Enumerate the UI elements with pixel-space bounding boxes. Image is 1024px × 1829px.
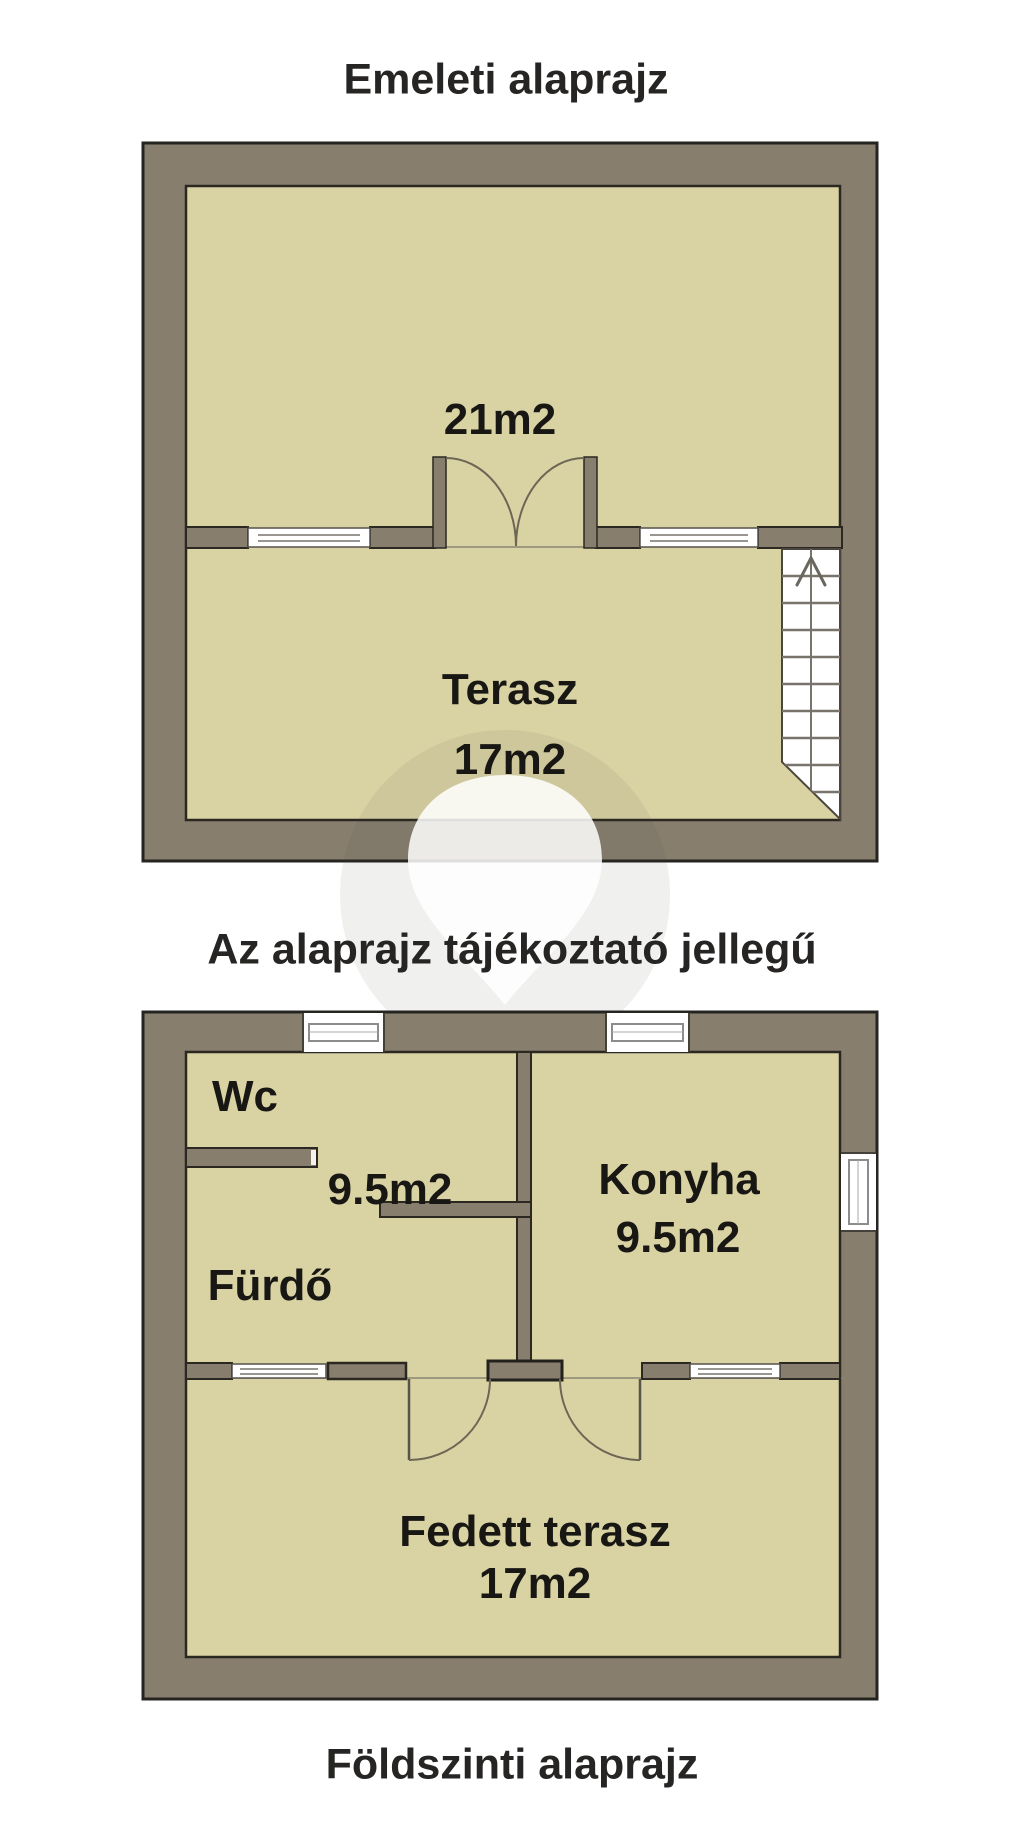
- room-label-bathroom: Fürdő: [208, 1264, 333, 1308]
- upper-floor: [186, 186, 840, 820]
- floorplan-page: Emeleti alaprajz 21m2 Terasz 17m2 Az ala…: [0, 0, 1024, 1829]
- room-label-wc: Wc: [212, 1075, 278, 1119]
- room-label-kitchen-area: 9.5m2: [616, 1216, 741, 1260]
- window: [248, 528, 370, 547]
- window: [690, 1364, 780, 1378]
- room-label-terrace: Terasz: [442, 668, 578, 712]
- wall-segment: [488, 1361, 562, 1380]
- room-label-terrace-area: 17m2: [454, 738, 567, 782]
- door-leaf: [433, 457, 446, 548]
- lower-plan-title: Földszinti alaprajz: [326, 1744, 699, 1787]
- room-label-covered-terrace: Fedett terasz: [399, 1510, 670, 1554]
- window: [232, 1364, 326, 1378]
- room-label-covered-terrace-area: 17m2: [479, 1562, 592, 1606]
- wall-segment: [186, 1148, 317, 1167]
- wall-segment: [186, 1363, 232, 1379]
- window: [605, 1013, 690, 1052]
- wall-end-cap: [311, 1150, 316, 1165]
- upper-plan-title: Emeleti alaprajz: [343, 59, 668, 102]
- wall-segment: [780, 1363, 840, 1379]
- window: [640, 528, 758, 547]
- wall-segment: [370, 527, 435, 548]
- room-label-kitchen: Konyha: [598, 1158, 759, 1202]
- wall-segment: [186, 527, 248, 548]
- window: [841, 1152, 876, 1232]
- wall-segment: [758, 527, 842, 548]
- door-leaf: [584, 457, 597, 548]
- window: [302, 1013, 385, 1052]
- room-label-upper-area: 21m2: [444, 398, 557, 442]
- wall-segment: [596, 527, 640, 548]
- room-label-bathroom-area: 9.5m2: [328, 1168, 453, 1212]
- wall-segment: [642, 1363, 690, 1379]
- wall-segment: [328, 1363, 406, 1379]
- disclaimer-text: Az alaprajz tájékoztató jellegű: [207, 929, 816, 972]
